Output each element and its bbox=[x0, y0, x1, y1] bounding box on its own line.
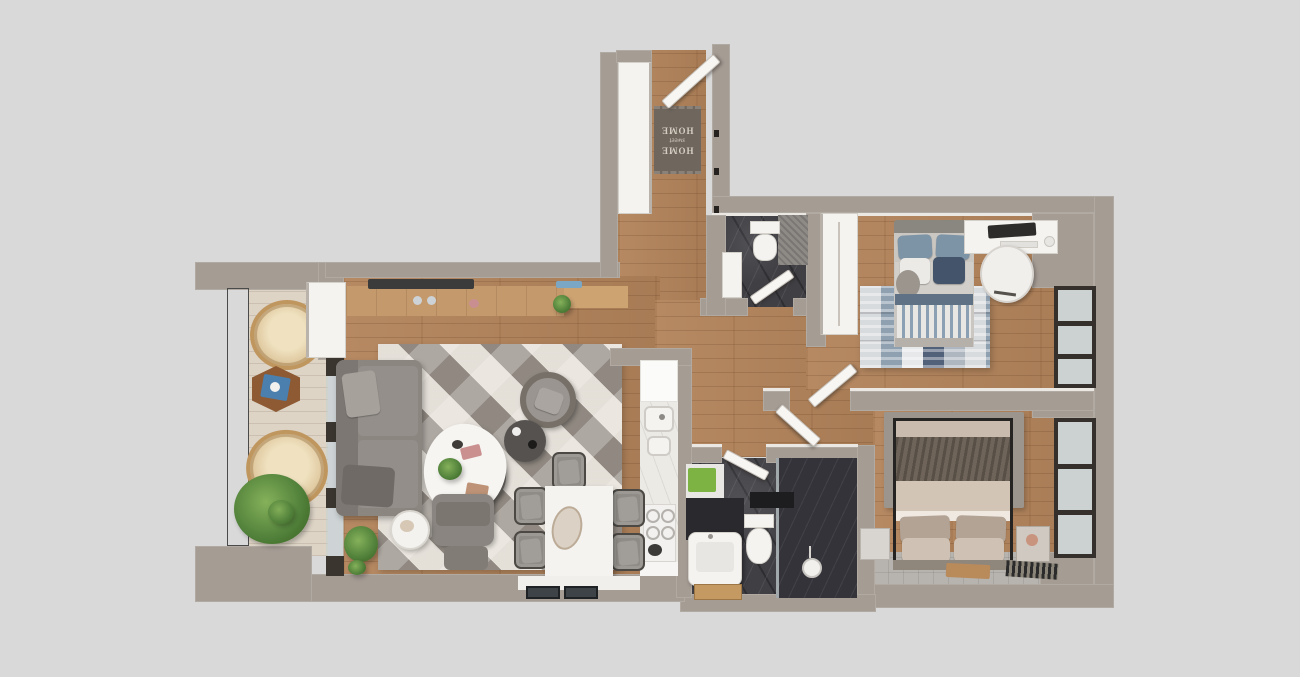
bed-2-pillow-front-left bbox=[902, 538, 950, 562]
chair-cushion bbox=[617, 540, 639, 566]
chair-cushion bbox=[520, 538, 542, 564]
floor-lamp-head-icon bbox=[528, 440, 537, 449]
wall-hook-icon bbox=[714, 206, 719, 213]
main-bath-toilet-tank bbox=[744, 514, 774, 528]
kitchen-tall-cabinet bbox=[306, 282, 346, 358]
entry-bath-sink bbox=[722, 252, 742, 298]
wall-hook-icon bbox=[714, 168, 719, 175]
sofa-throw-blanket bbox=[341, 464, 396, 508]
cup-icon bbox=[270, 382, 280, 392]
shower-head-icon bbox=[802, 558, 822, 578]
entry-bath-toilet bbox=[753, 234, 777, 261]
pot-icon bbox=[648, 544, 662, 556]
living-plant bbox=[344, 526, 378, 562]
chair-cushion bbox=[558, 459, 580, 485]
south-window-pane bbox=[526, 586, 560, 599]
shower-glass-panel bbox=[776, 458, 779, 598]
faucet-icon bbox=[708, 534, 713, 539]
wood-tray bbox=[694, 584, 742, 600]
dining-chair-right-1 bbox=[611, 489, 645, 527]
south-window-pane bbox=[564, 586, 598, 599]
footstool bbox=[444, 546, 488, 570]
wall-corridor-left bbox=[600, 52, 618, 278]
sofa-pillow bbox=[341, 370, 381, 418]
chair-cushion bbox=[520, 494, 542, 520]
window-mullion bbox=[1058, 321, 1092, 326]
shower-zone bbox=[776, 458, 857, 598]
window-mullion bbox=[1058, 510, 1092, 515]
chair-cushion bbox=[617, 496, 639, 522]
wall-hook-icon bbox=[714, 130, 719, 137]
pink-bowl-icon bbox=[469, 299, 479, 308]
side-table-cup bbox=[512, 427, 521, 436]
entry-doormat: HOME sweet HOME bbox=[654, 106, 701, 174]
kitchen-wood-counter bbox=[346, 286, 564, 316]
living-plant-small bbox=[348, 560, 366, 575]
burner-icon bbox=[661, 509, 675, 523]
wall-hall-bedroom-divider-right bbox=[850, 388, 1094, 411]
desk-cup bbox=[1044, 236, 1055, 247]
bed-2-pillow-front-right bbox=[954, 538, 1004, 562]
jar-icon bbox=[427, 296, 436, 305]
island-cabinet-top bbox=[640, 360, 678, 402]
bed-1-striped-blanket bbox=[897, 305, 971, 339]
side-table-decor bbox=[400, 520, 414, 532]
bedroom-1-window bbox=[1054, 286, 1096, 388]
doormat-text: HOME sweet HOME bbox=[661, 124, 694, 155]
wardrobe-door-seam bbox=[838, 222, 840, 326]
dining-chair-top bbox=[552, 452, 586, 490]
agave-plant-center bbox=[268, 500, 294, 524]
coffee-table-bowl bbox=[452, 440, 463, 449]
bed-2-foot-bench bbox=[896, 421, 1010, 437]
bed-1-foot bbox=[895, 338, 973, 347]
bed-1-blue-pillow-left bbox=[897, 234, 932, 260]
bedroom-2-window bbox=[1054, 418, 1096, 558]
bed-1-navy-band bbox=[895, 294, 973, 305]
island-sink-basin-2 bbox=[647, 436, 671, 456]
round-side-table-dark bbox=[504, 420, 546, 462]
wall-living-top bbox=[325, 262, 620, 278]
bed-1-headboard bbox=[894, 220, 974, 233]
wall-main-bath-top-left bbox=[690, 444, 722, 463]
sink-blue-glass bbox=[556, 281, 582, 288]
shower-head-arm bbox=[809, 546, 811, 558]
wall-right-outer bbox=[1094, 196, 1114, 608]
wall-sw-corner bbox=[195, 546, 312, 602]
green-towel bbox=[688, 468, 716, 492]
doormat-line-mid: sweet bbox=[661, 136, 694, 145]
window-mullion bbox=[1058, 464, 1092, 469]
burner-icon bbox=[646, 526, 660, 540]
island-cabinet-bottom bbox=[640, 562, 678, 576]
wood-board-decor bbox=[946, 563, 991, 579]
burner-icon bbox=[661, 526, 675, 540]
nightstand-left bbox=[860, 528, 890, 560]
jar-icon bbox=[413, 296, 422, 305]
pouf-throw bbox=[436, 502, 490, 526]
bed-2-duvet bbox=[896, 481, 1010, 515]
window-mullion bbox=[1058, 354, 1092, 359]
dining-chair-left-2 bbox=[514, 531, 548, 569]
floor-plan-render: HOME sweet HOME bbox=[0, 0, 1300, 677]
nightstand-decor bbox=[1026, 534, 1038, 546]
entry-bath-toilet-tank bbox=[750, 221, 780, 234]
wall-main-bath-right bbox=[857, 445, 875, 595]
kitchen-plant-icon bbox=[553, 295, 571, 313]
bed-2-dark-blanket bbox=[896, 437, 1010, 481]
entry-bath-shower-zone bbox=[778, 215, 808, 265]
main-bath-toilet bbox=[746, 528, 772, 564]
doormat-line-bottom: HOME bbox=[661, 124, 694, 135]
main-bath-sink-basin bbox=[696, 542, 734, 572]
cooktop-hob-icon bbox=[368, 279, 474, 289]
dining-chair-left-1 bbox=[514, 487, 548, 525]
door-frame-post bbox=[326, 556, 344, 576]
wall-bedroom-2-bottom bbox=[858, 584, 1114, 608]
dining-chair-right-2 bbox=[611, 533, 645, 571]
burner-icon bbox=[646, 509, 660, 523]
bath-niche bbox=[750, 492, 794, 508]
bed-1-navy-pillow bbox=[933, 257, 965, 284]
kitchen-wood-counter-right bbox=[564, 286, 628, 308]
island-faucet-icon bbox=[659, 414, 665, 420]
coffee-table-plant-icon bbox=[438, 458, 462, 480]
doormat-line-top: HOME bbox=[661, 144, 694, 155]
entry-closet bbox=[618, 62, 652, 214]
